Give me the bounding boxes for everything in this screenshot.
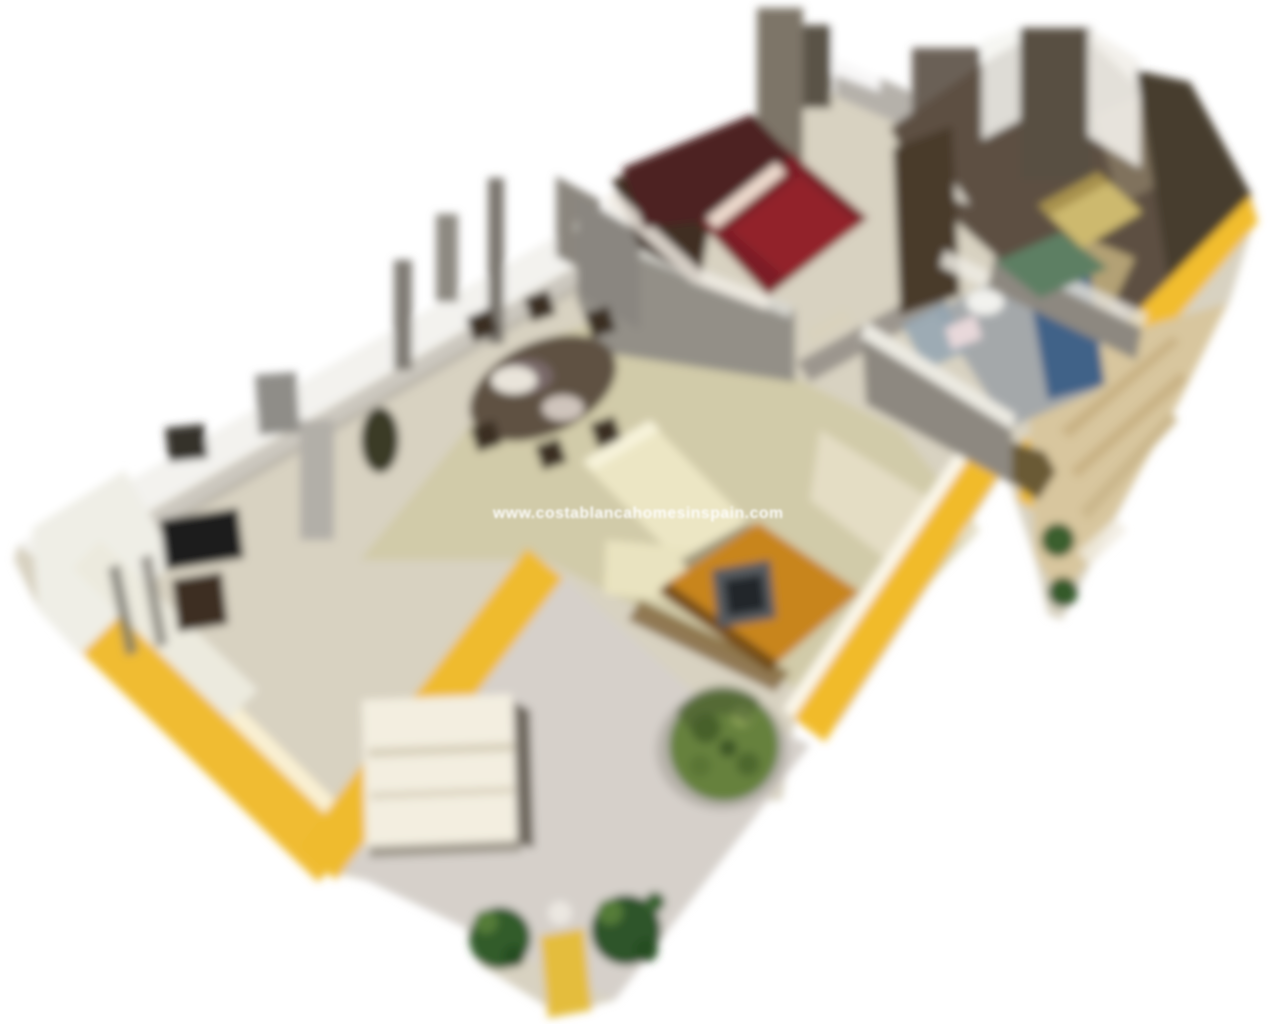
- svg-text:www.costablancahomesinspain.co: www.costablancahomesinspain.com: [492, 505, 784, 522]
